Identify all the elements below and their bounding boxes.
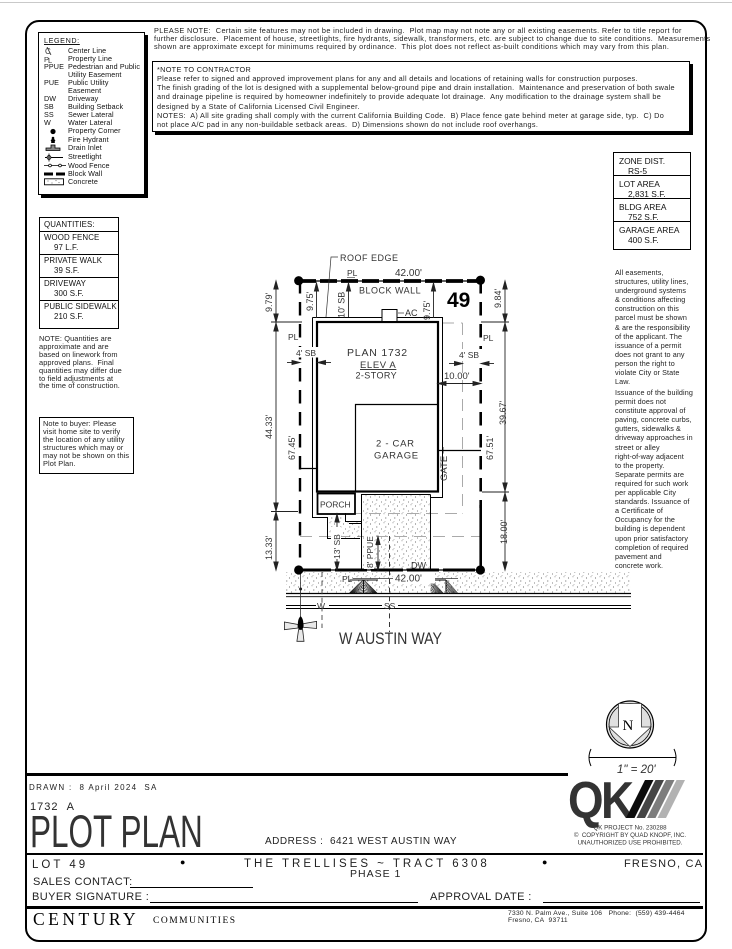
svg-text:PLAN 1732: PLAN 1732 bbox=[347, 347, 408, 359]
svg-text:PL: PL bbox=[288, 332, 299, 342]
svg-text:PL: PL bbox=[342, 574, 353, 584]
svg-text:9.75': 9.75' bbox=[305, 291, 315, 311]
svg-text:42.00': 42.00' bbox=[395, 574, 422, 585]
svg-text:PL: PL bbox=[483, 333, 494, 343]
svg-text:4' SB: 4' SB bbox=[296, 348, 316, 358]
svg-text:BLOCK WALL: BLOCK WALL bbox=[359, 286, 421, 296]
svg-text:10' SB: 10' SB bbox=[337, 292, 347, 318]
svg-text:DW: DW bbox=[411, 561, 426, 571]
svg-text:2-STORY: 2-STORY bbox=[356, 371, 397, 381]
svg-text:N: N bbox=[623, 718, 634, 734]
svg-text:© COPYRIGHT BY QUAD KNOPF, IN: © COPYRIGHT BY QUAD KNOPF, INC. bbox=[574, 832, 687, 839]
svg-text:39.67': 39.67' bbox=[498, 400, 508, 425]
svg-text:ELEV A: ELEV A bbox=[360, 360, 396, 371]
svg-text:67.45': 67.45' bbox=[287, 435, 297, 460]
svg-text:9.75': 9.75' bbox=[422, 300, 432, 320]
svg-text:GARAGE: GARAGE bbox=[374, 451, 419, 462]
svg-text:18.00': 18.00' bbox=[499, 519, 509, 544]
svg-text:42.00': 42.00' bbox=[395, 268, 422, 279]
svg-text:PL: PL bbox=[347, 268, 358, 278]
svg-text:2 - CAR: 2 - CAR bbox=[376, 439, 415, 450]
svg-text:QK: QK bbox=[568, 775, 634, 830]
svg-text:ROOF EDGE: ROOF EDGE bbox=[340, 253, 399, 263]
svg-text:AC: AC bbox=[405, 308, 418, 318]
svg-text:13' SB: 13' SB bbox=[332, 534, 342, 559]
svg-text:8' PPUE: 8' PPUE bbox=[365, 536, 375, 568]
svg-text:W: W bbox=[317, 601, 325, 611]
svg-text:10.00': 10.00' bbox=[444, 371, 470, 382]
svg-text:9.84': 9.84' bbox=[493, 288, 503, 308]
svg-text:67.51': 67.51' bbox=[485, 435, 495, 460]
svg-text:9.79': 9.79' bbox=[264, 292, 274, 312]
svg-text:UNAUTHORIZED USE PROHIBITED.: UNAUTHORIZED USE PROHIBITED. bbox=[578, 840, 683, 847]
svg-text:13.33': 13.33' bbox=[264, 535, 274, 560]
svg-text:49: 49 bbox=[447, 289, 470, 312]
svg-text:W AUSTIN WAY: W AUSTIN WAY bbox=[339, 630, 442, 648]
svg-text:QK PROJECT No. 230288: QK PROJECT No. 230288 bbox=[593, 825, 667, 832]
svg-text:44.33': 44.33' bbox=[264, 414, 274, 439]
svg-text:4' SB: 4' SB bbox=[459, 350, 479, 360]
svg-text:PORCH: PORCH bbox=[320, 500, 351, 510]
svg-text:GATE: GATE bbox=[439, 456, 450, 481]
